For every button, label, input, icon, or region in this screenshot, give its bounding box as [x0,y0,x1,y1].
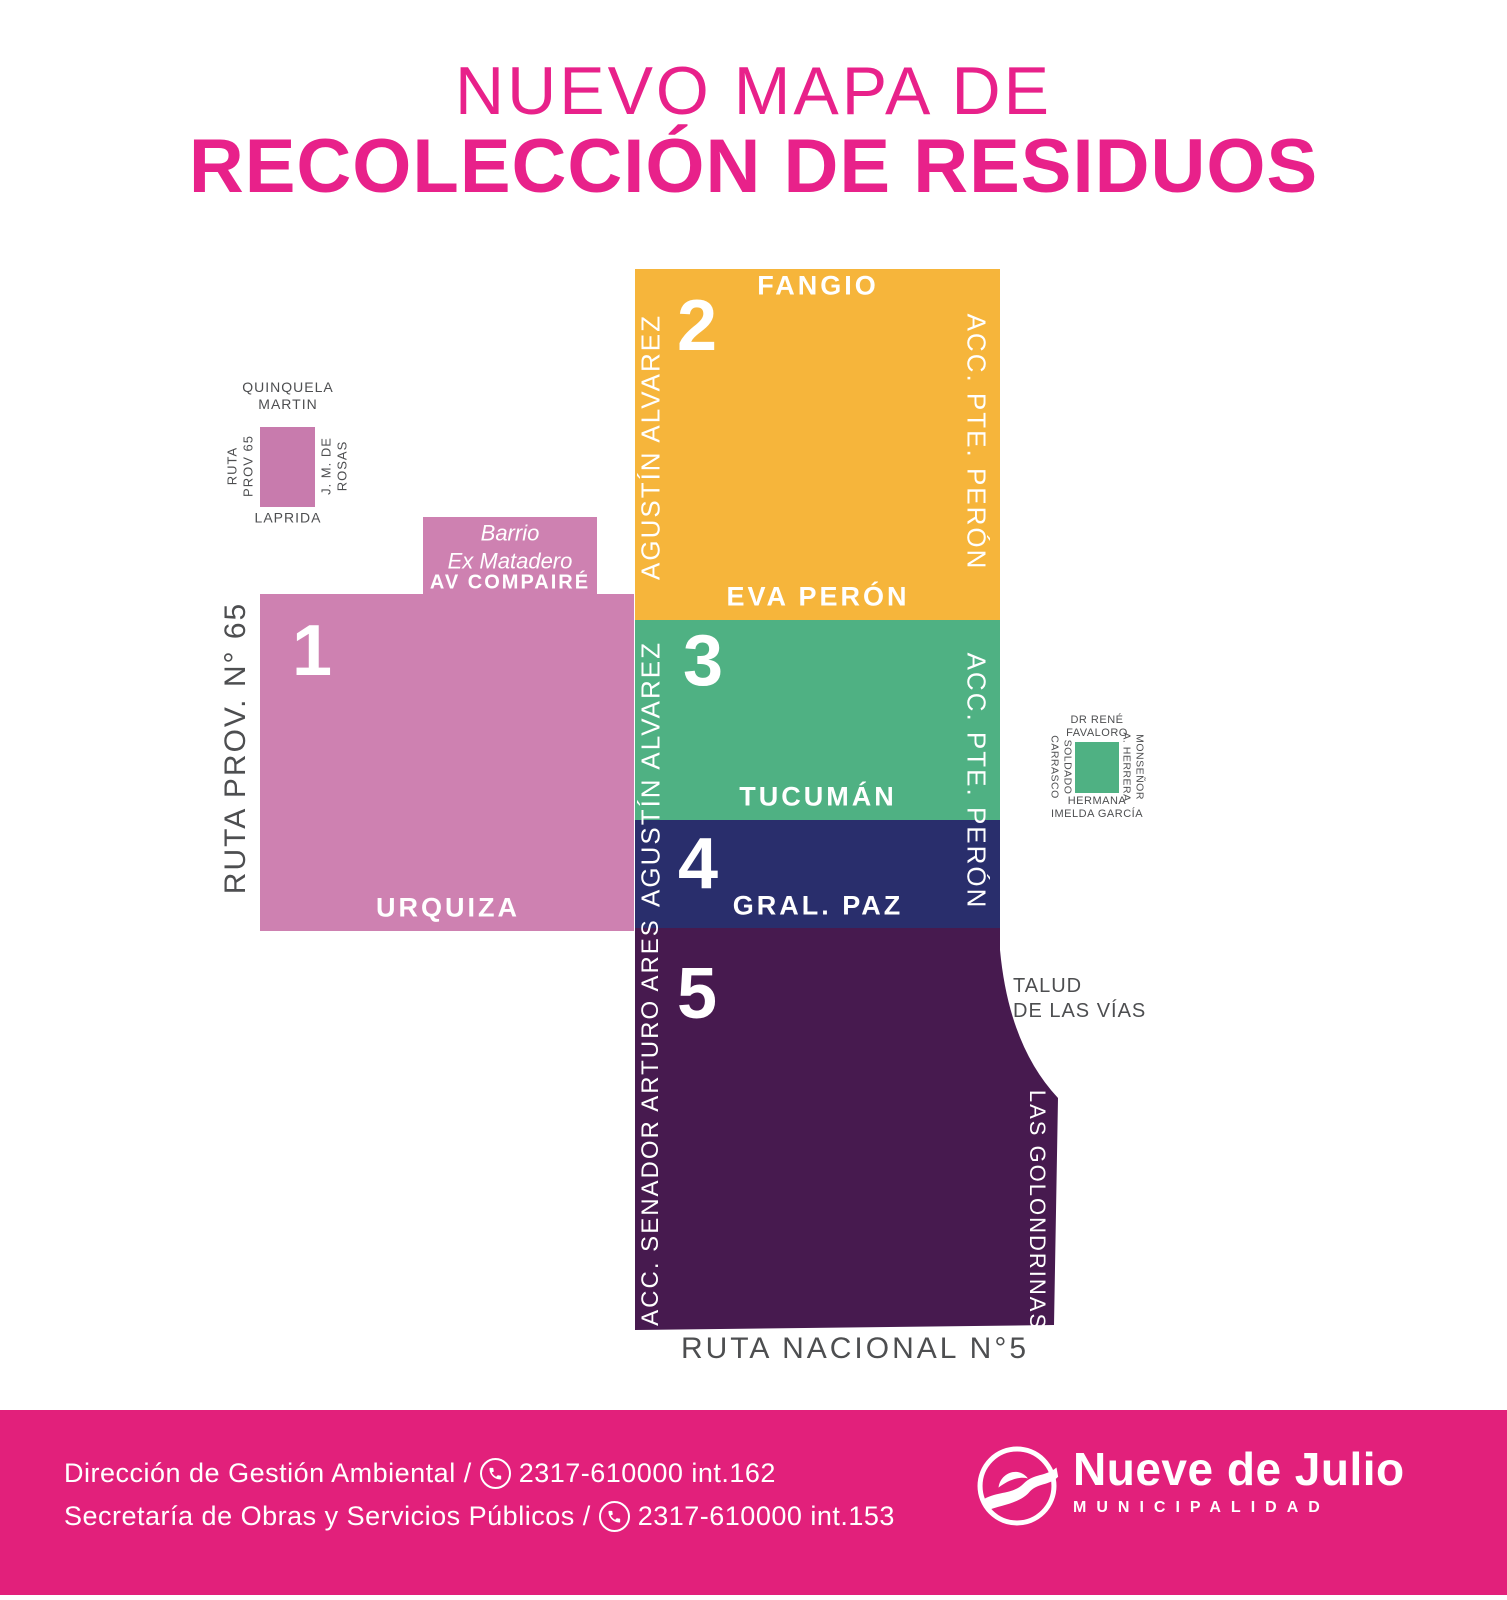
phone-icon [480,1458,511,1489]
street-fangio: FANGIO [757,271,879,302]
legend-green-top-line2: FAVALORO [1066,727,1128,740]
municipality-logo: Nueve de Julio MUNICIPALIDAD [975,1444,1405,1528]
road-las-golondrinas: LAS GOLONDRINAS [1024,1090,1050,1330]
talud-line-1: TALUD [1013,974,1146,999]
street-eva-peron: EVA PERÓN [726,582,909,613]
legend-pink-top: QUINQUELA MARTIN [242,379,333,413]
legend-pink-left: RUTA PROV 65 [224,435,255,497]
legend-green-left: SOLDADO CARRASCO [1048,735,1073,799]
poster-title: NUEVO MAPA DE RECOLECCIÓN DE RESIDUOS [0,56,1507,206]
zone2-number: 2 [677,290,717,362]
legend-green-bottom-line2: IMELDA GARCÍA [1051,808,1143,821]
logo-subtitle: MUNICIPALIDAD [1073,1499,1405,1517]
street-av-compaire: AV COMPAIRÉ [430,572,590,595]
legend-pink-top-line2: MARTIN [242,396,333,413]
footer-line-1-phone: 2317-610000 int.162 [519,1458,776,1489]
phone-icon-glyph [606,1508,623,1525]
poster-canvas: NUEVO MAPA DE RECOLECCIÓN DE RESIDUOS 1 … [0,0,1507,1600]
road-acc-pte-peron-z34: ACC. PTE. PERÓN [961,653,992,910]
legend-pink-bottom: LAPRIDA [255,510,322,527]
legend-pink-left-line1: RUTA [224,435,240,497]
legend-green-square [1075,742,1119,793]
street-urquiza: URQUIZA [376,893,520,924]
legend-pink-square [260,427,315,507]
barrio-line-1: Barrio [448,520,573,548]
legend-pink-right-line2: ROSAS [334,437,350,495]
footer-line-2-phone: 2317-610000 int.153 [638,1501,895,1532]
zone5-number: 5 [677,958,717,1030]
zone4-number: 4 [678,828,718,900]
phone-icon [599,1501,630,1532]
legend-pink-right-line1: J. M. DE [318,437,334,495]
zone3-number: 3 [683,625,723,697]
road-acc-pte-peron-z2: ACC. PTE. PERÓN [961,314,992,571]
barrio-ex-matadero: Barrio Ex Matadero [448,520,573,575]
footer-line-2-text: Secretaría de Obras y Servicios Públicos… [64,1501,591,1532]
logo-wave-icon [975,1444,1059,1528]
logo-text: Nueve de Julio MUNICIPALIDAD [1073,1444,1405,1517]
barrio-line-2: Ex Matadero [448,547,573,575]
footer-line-1-text: Dirección de Gestión Ambiental / [64,1458,472,1489]
legend-green-left-line1: SOLDADO [1061,735,1074,799]
legend-green-right-line1: MONSEÑOR [1133,732,1146,801]
road-ruta-prov-65: RUTA PROV. N° 65 [219,602,253,894]
legend-green-right-line2: A. HERRERA [1120,732,1133,801]
road-acc-senador-arturo-ares: ACC. SENADOR ARTURO ARES [637,918,665,1326]
footer-contact-lines: Dirección de Gestión Ambiental / 2317-61… [64,1458,895,1544]
legend-green-bottom-line1: HERMANA [1051,795,1143,808]
title-line-1: NUEVO MAPA DE [0,56,1507,127]
legend-green-top-line1: DR RENÉ [1066,714,1128,727]
label-talud-de-las-vias: TALUD DE LAS VÍAS [1013,974,1146,1024]
footer-line-1: Dirección de Gestión Ambiental / 2317-61… [64,1458,895,1489]
legend-pink-left-line2: PROV 65 [240,435,256,497]
talud-line-2: DE LAS VÍAS [1013,999,1146,1024]
legend-green-left-line2: CARRASCO [1048,735,1061,799]
legend-pink-top-line1: QUINQUELA [242,379,333,396]
legend-pink-right: J. M. DE ROSAS [318,437,349,495]
street-tucuman: TUCUMÁN [739,782,896,813]
legend-green-top: DR RENÉ FAVALORO [1066,714,1128,740]
phone-icon-glyph [487,1465,504,1482]
footer-band: Dirección de Gestión Ambiental / 2317-61… [0,1410,1507,1595]
legend-green-right: MONSEÑOR A. HERRERA [1120,732,1145,801]
road-ruta-nacional-5: RUTA NACIONAL N°5 [681,1332,1029,1366]
road-agustin-alvarez-z2: AGUSTÍN ALVAREZ [636,314,667,580]
legend-green-bottom: HERMANA IMELDA GARCÍA [1051,795,1143,821]
footer-line-2: Secretaría de Obras y Servicios Públicos… [64,1501,895,1532]
street-gral-paz: GRAL. PAZ [733,891,904,922]
zone1-number: 1 [292,615,332,687]
title-line-2: RECOLECCIÓN DE RESIDUOS [0,127,1507,206]
road-agustin-alvarez-z34: AGUSTÍN ALVAREZ [636,641,667,907]
logo-name: Nueve de Julio [1073,1444,1405,1495]
